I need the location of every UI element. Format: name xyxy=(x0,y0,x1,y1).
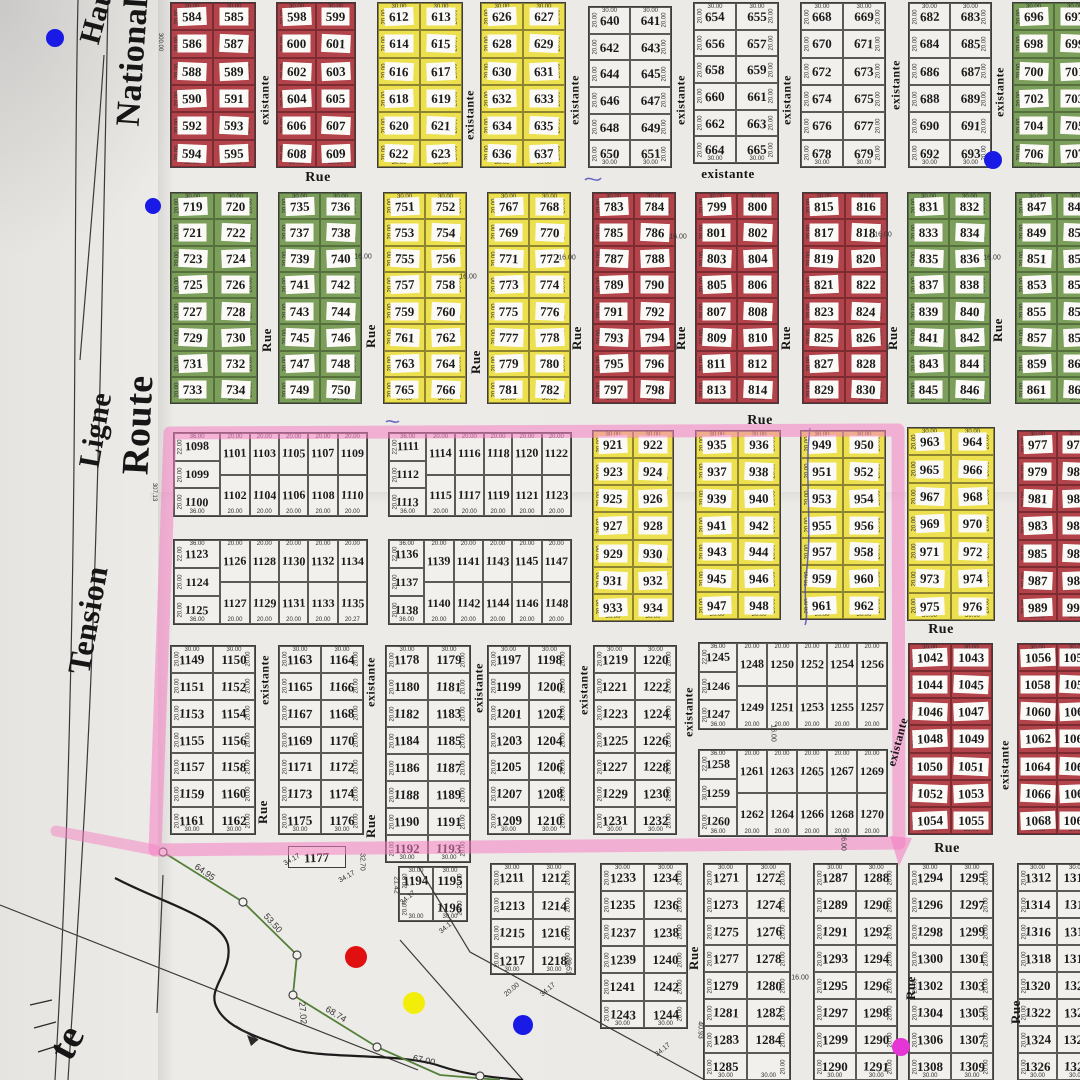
parcel-number: 1163 xyxy=(285,652,315,666)
parcel-cell: 83520.00 xyxy=(908,246,949,272)
parcel-number: 861 xyxy=(1025,383,1049,396)
dimension-label: 36.00 xyxy=(190,617,205,623)
parcel-cell: 65720.00 xyxy=(736,30,778,57)
parcel-cell: 131330.0020.00 xyxy=(1057,864,1080,891)
parcel-number: 964 xyxy=(961,435,985,448)
parcel-cell: 129530.0020.00 xyxy=(951,864,993,891)
dimension-label: 20.00 xyxy=(452,146,458,161)
parcel-number: 1127 xyxy=(221,597,248,610)
parcel-number: 769 xyxy=(497,226,521,239)
parcel-number: 1264 xyxy=(768,808,796,822)
dimension-label: 20.00 xyxy=(774,751,789,757)
parcel-cell: 84420.00 xyxy=(949,351,990,377)
parcel-number: 770 xyxy=(537,225,561,239)
parcel-number: 642 xyxy=(598,41,622,54)
parcel-number: 673 xyxy=(852,64,876,78)
dimension-label: 20.00 xyxy=(555,36,561,51)
parcel-number: 1275 xyxy=(710,924,741,938)
parcel-number: 688 xyxy=(917,92,941,106)
parcel-cell: 76320.00 xyxy=(384,351,425,377)
dimension-label: 20.00 xyxy=(247,356,253,371)
parcel-cell: 60320.00 xyxy=(316,58,355,85)
parcel-number: 744 xyxy=(328,304,352,318)
parcel-cell: 67320.00 xyxy=(843,58,885,85)
parcel-cell: 80030.0020.00 xyxy=(737,193,778,219)
street-label: Rue xyxy=(1008,1000,1024,1024)
parcel-cell: 129820.00 xyxy=(909,918,951,945)
parcel-number: 965 xyxy=(918,463,942,476)
parcel-cell: 64220.00 xyxy=(589,34,630,61)
street-label: Rue xyxy=(363,814,379,838)
parcel-number: 1245 xyxy=(704,650,732,664)
marker-dot xyxy=(46,29,64,47)
parcel-number: 983 xyxy=(1025,519,1049,533)
parcel-block: 78330.0020.0078430.0020.0078520.0078620.… xyxy=(592,192,676,404)
parcel-number: 591 xyxy=(222,92,246,105)
parcel-cell: 114220.00 xyxy=(454,582,483,624)
parcel-cell: 126920.00 xyxy=(857,750,887,793)
parcel-cell: 105120.00 xyxy=(951,753,993,780)
parcel-number: 1282 xyxy=(753,1005,784,1019)
parcel-number: 1055 xyxy=(956,814,986,827)
parcel-number: 838 xyxy=(958,278,982,291)
parcel-number: 1222 xyxy=(640,679,671,693)
parcel-cell: 93920.00 xyxy=(696,485,738,512)
parcel-cell: 110320.00 xyxy=(250,433,279,475)
parcel-cell: 81630.0020.00 xyxy=(845,193,887,219)
parcel-cell: 130930.0020.00 xyxy=(951,1053,993,1080)
dimension-label: 16.00 xyxy=(669,234,687,241)
parcel-cell: 132120.00 xyxy=(1057,972,1080,999)
dimension-label: 20.00 xyxy=(175,277,181,292)
parcel-block: 71930.0020.0072030.0020.0072120.0072220.… xyxy=(170,192,258,404)
parcel-cell: 129030.0020.00 xyxy=(814,1053,856,1080)
parcel-cell: 129130.0020.00 xyxy=(856,1053,898,1080)
parcel-number: 1277 xyxy=(710,951,741,965)
parcel-cell: 76920.00 xyxy=(488,219,529,245)
parcel-number: 1151 xyxy=(177,680,206,693)
parcel-cell: 84120.00 xyxy=(908,324,949,350)
parcel-cell: 114020.00 xyxy=(424,582,453,624)
parcel-number: 1141 xyxy=(455,555,482,568)
parcel-block: 129430.0020.00129530.0020.00129620.00129… xyxy=(908,863,994,1080)
parcel-cell: 127020.00 xyxy=(857,793,887,836)
parcel-number: 1164 xyxy=(327,653,356,666)
parcel-cell: 94730.0020.00 xyxy=(696,592,738,619)
parcel-number: 747 xyxy=(287,357,311,371)
parcel-number: 1162 xyxy=(219,814,248,827)
parcel-cell: 64130.0020.00 xyxy=(630,7,671,34)
parcel-number: 720 xyxy=(224,200,248,213)
parcel-number: 829 xyxy=(812,383,836,396)
parcel-number: 976 xyxy=(961,600,985,613)
parcel-cell: 60720.00 xyxy=(316,112,355,139)
parcel-number: 832 xyxy=(958,200,982,213)
parcel-number: 1119 xyxy=(484,488,511,502)
dimension-label: 20.00 xyxy=(345,434,360,440)
parcel-number: 815 xyxy=(812,199,836,213)
parcel-number: 584 xyxy=(180,10,204,24)
parcel-number: 842 xyxy=(957,330,981,344)
parcel-number: 839 xyxy=(917,305,941,318)
parcel-cell: 113836.0020.00 xyxy=(389,596,424,624)
dimension-label: 20.00 xyxy=(665,199,671,214)
parcel-cell: 129020.00 xyxy=(856,1026,898,1053)
parcel-cell: 131620.00 xyxy=(1018,918,1057,945)
parcel-number: 764 xyxy=(434,357,458,370)
parcel-number: 1295 xyxy=(957,871,987,884)
street-label: existante xyxy=(472,663,487,713)
parcel-number: 1148 xyxy=(542,596,570,610)
parcel-number: 1057 xyxy=(1062,651,1080,664)
parcel-cell: 109836.0022.00 xyxy=(174,433,220,461)
parcel-number: 1063 xyxy=(1062,732,1080,745)
parcel-cell: 97120.00 xyxy=(908,538,951,565)
parcel-number: 982 xyxy=(1064,492,1080,506)
parcel-number: 836 xyxy=(957,252,981,266)
dimension-label: 20.00 xyxy=(912,544,918,559)
parcel-cell: 123330.0020.00 xyxy=(601,864,644,891)
parcel-number: 783 xyxy=(601,199,625,213)
parcel-cell: 95120.00 xyxy=(801,458,843,485)
street-label: Rue xyxy=(673,326,689,350)
street-label: existante xyxy=(993,67,1008,117)
parcel-number: 930 xyxy=(641,546,665,560)
parcel-cell: 73920.00 xyxy=(279,246,320,272)
parcel-number: 1165 xyxy=(285,680,314,693)
parcel-cell: 73530.0020.00 xyxy=(279,193,320,219)
parcel-number: 944 xyxy=(747,545,771,559)
parcel-number: 1238 xyxy=(650,925,681,939)
dimension-label: 16.00 xyxy=(791,975,809,982)
parcel-cell: 79020.00 xyxy=(634,272,675,298)
parcel-number: 657 xyxy=(745,36,769,50)
street-label: Rue xyxy=(259,328,275,352)
parcel-cell: 118120.00 xyxy=(428,673,470,700)
parcel-number: 1290 xyxy=(861,897,892,911)
parcel-block: 125836.0022.00125930.00126036.0020.00126… xyxy=(698,749,888,837)
parcel-number: 669 xyxy=(852,10,876,23)
parcel-cell: 81220.00 xyxy=(737,351,778,377)
parcel-cell: 115520.00 xyxy=(171,727,213,754)
parcel-number: 1244 xyxy=(650,1007,681,1021)
parcel-cell: 113320.00 xyxy=(308,582,337,624)
parcel-number: 620 xyxy=(387,119,411,132)
dimension-label: 20.00 xyxy=(804,722,819,728)
parcel-cell: 96820.00 xyxy=(951,483,994,510)
dimension-label: 20.00 xyxy=(555,64,561,79)
parcel-cell: 94830.0020.00 xyxy=(738,592,780,619)
dimension-label: 20.00 xyxy=(912,571,918,586)
parcel-cell: 93330.0020.00 xyxy=(593,594,633,621)
parcel-cell: 111420.00 xyxy=(426,433,455,475)
parcel-number: 637 xyxy=(532,146,556,160)
parcel-number: 1316 xyxy=(1022,924,1053,938)
parcel-cell: 60120.00 xyxy=(316,30,355,57)
parcel-number: 1157 xyxy=(177,760,206,773)
parcel-cell: 120820.00 xyxy=(529,780,570,807)
parcel-cell: 59530.0020.00 xyxy=(213,140,255,167)
dimension-label: 39.51 xyxy=(565,957,572,975)
parcel-number: 1288 xyxy=(861,871,891,884)
parcel-cell: 117320.00 xyxy=(279,780,321,807)
parcel-number: 753 xyxy=(393,226,417,239)
parcel-block: 112336.0022.00112420.00112536.0020.00112… xyxy=(173,539,368,625)
parcel-cell: 65820.00 xyxy=(694,56,736,83)
parcel-block: 64030.0020.0064130.0020.0064220.0064320.… xyxy=(588,6,672,168)
parcel-number: 1111 xyxy=(394,440,420,454)
parcel-number: 834 xyxy=(957,225,981,239)
parcel-number: 810 xyxy=(745,330,769,344)
dimension-label: 16.00 xyxy=(558,255,576,262)
dimension-label: 20.00 xyxy=(560,356,566,371)
parcel-number: 670 xyxy=(810,37,834,50)
road-name-label: te xyxy=(38,1017,95,1067)
parcel-number: 1118 xyxy=(484,447,511,461)
parcel-cell: 59830.0020.00 xyxy=(277,3,316,30)
parcel-cell: 58920.00 xyxy=(213,58,255,85)
parcel-cell: 69120.00 xyxy=(950,112,991,139)
parcel-number: 1187 xyxy=(434,760,464,774)
parcel-number: 665 xyxy=(745,143,769,157)
parcel-number: 1202 xyxy=(534,706,565,720)
parcel-number: 1273 xyxy=(711,898,741,911)
parcel-number: 601 xyxy=(323,37,347,51)
parcel-number: 1212 xyxy=(539,871,569,884)
parcel-number: 1221 xyxy=(600,680,630,693)
parcel-number: 1306 xyxy=(915,1032,946,1046)
parcel-number: 820 xyxy=(854,252,878,266)
dimension-label: 20.00 xyxy=(227,434,242,440)
dimension-label: 34.17 xyxy=(539,982,557,999)
parcel-number: 951 xyxy=(810,465,834,478)
parcel-cell: 126036.0020.00 xyxy=(699,807,737,836)
parcel-number: 1261 xyxy=(738,765,766,779)
parcel-number: 682 xyxy=(917,10,941,24)
parcel-number: 1324 xyxy=(1022,1032,1053,1046)
parcel-number: 925 xyxy=(601,492,625,506)
parcel-cell: 115420.00 xyxy=(213,700,255,727)
parcel-cell: 120620.00 xyxy=(529,753,570,780)
parcel-number: 618 xyxy=(387,92,411,106)
parcel-number: 1045 xyxy=(956,678,987,692)
parcel-cell: 82220.00 xyxy=(845,272,887,298)
dimension-label: 20.00 xyxy=(490,509,505,515)
dimension-label: 32.70 xyxy=(359,853,366,871)
parcel-number: 1209 xyxy=(493,813,524,827)
parcel-cell: 111336.0020.00 xyxy=(389,488,426,516)
parcel-number: 594 xyxy=(180,146,204,160)
parcel-number: 765 xyxy=(393,383,417,396)
parcel-block: 127130.0020.00127230.0020.00127320.00127… xyxy=(703,863,791,1080)
parcel-cell: 61620.00 xyxy=(378,58,420,85)
parcel-cell: 74420.00 xyxy=(320,298,361,324)
parcel-number: 1246 xyxy=(704,680,732,693)
parcel-cell: 113420.00 xyxy=(338,540,367,582)
parcel-cell: 82020.00 xyxy=(845,246,887,272)
parcel-cell: 115220.00 xyxy=(213,673,255,700)
parcel-number: 1263 xyxy=(768,765,796,778)
parcel-number: 851 xyxy=(1024,252,1048,266)
parcel-number: 607 xyxy=(323,119,347,133)
parcel-cell: 118520.00 xyxy=(428,727,470,754)
parcel-number: 1181 xyxy=(434,679,464,693)
dimension-label: 20.00 xyxy=(981,91,987,106)
parcel-cell: 77420.00 xyxy=(529,272,570,298)
dimension-label: 20.00 xyxy=(875,491,881,506)
parcel-number: 1294 xyxy=(915,870,946,884)
dimension-label: 20.00 xyxy=(980,199,986,214)
parcel-number: 1145 xyxy=(513,554,541,568)
parcel-number: 706 xyxy=(1021,146,1045,160)
parcel-cell: 68720.00 xyxy=(950,58,991,85)
parcel-cell: 80720.00 xyxy=(696,298,737,324)
parcel-number: 1305 xyxy=(957,1005,988,1019)
dimension-label: 20.00 xyxy=(549,617,564,623)
parcel-number: 675 xyxy=(852,92,876,105)
parcel-cell: 64720.00 xyxy=(630,87,671,114)
parcel-cell: 99030.0020.00 xyxy=(1057,594,1080,621)
parcel-number: 1124 xyxy=(183,576,210,589)
parcel-number: 634 xyxy=(490,119,514,132)
parcel-cell: 85120.00 xyxy=(1016,246,1057,272)
parcel-number: 600 xyxy=(285,37,309,50)
parcel-block: 123330.0020.00123430.0020.00123520.00123… xyxy=(600,863,688,1029)
parcel-cell: 126620.00 xyxy=(797,793,827,836)
parcel-number: 1169 xyxy=(285,733,315,747)
parcel-block: 61230.0020.0061330.0020.0061420.0061520.… xyxy=(377,2,463,168)
parcel-number: 608 xyxy=(284,146,308,160)
parcel-cell: 66120.00 xyxy=(736,83,778,110)
parcel-number: 585 xyxy=(222,10,246,23)
parcel-cell: 77920.00 xyxy=(488,351,529,377)
parcel-number: 1150 xyxy=(219,653,248,666)
parcel-cell: 110036.0020.00 xyxy=(174,488,220,516)
parcel-cell: 125220.00 xyxy=(797,643,827,686)
parcel-cell: 97630.0020.00 xyxy=(951,593,994,620)
parcel-cell: 63730.0020.00 xyxy=(523,140,565,167)
parcel-number: 942 xyxy=(747,519,771,532)
parcel-cell: 77820.00 xyxy=(529,324,570,350)
parcel-number: 934 xyxy=(641,601,665,614)
marker-dot xyxy=(145,198,161,214)
parcel-number: 989 xyxy=(1025,600,1049,614)
parcel-number: 807 xyxy=(705,305,729,318)
parcel-number: 1312 xyxy=(1022,870,1053,884)
parcel-number: 773 xyxy=(496,278,520,292)
parcel-cell: 118220.00 xyxy=(386,700,428,727)
parcel-cell: 112720.00 xyxy=(220,582,249,624)
parcel-cell: 97020.00 xyxy=(951,510,994,537)
parcel-cell: 93020.00 xyxy=(633,540,673,567)
parcel-number: 750 xyxy=(328,383,352,397)
parcel-number: 1200 xyxy=(534,679,565,693)
parcel-cell: 113720.00 xyxy=(389,568,424,596)
parcel-cell: 80220.00 xyxy=(737,219,778,245)
dimension-label: 20.00 xyxy=(351,356,357,371)
parcel-number: 1233 xyxy=(607,871,638,885)
parcel-cell: 63320.00 xyxy=(523,85,565,112)
parcel-number: 754 xyxy=(433,225,457,239)
parcel-number: 932 xyxy=(641,573,665,587)
parcel-cell: 110220.00 xyxy=(220,475,249,517)
dimension-label: 20.00 xyxy=(555,9,561,24)
parcel-cell: 76220.00 xyxy=(425,324,466,350)
parcel-block: 59830.0020.0059930.0020.0060020.0060120.… xyxy=(276,2,356,168)
parcel-cell: 78820.00 xyxy=(634,246,675,272)
parcel-cell: 121030.0020.00 xyxy=(529,807,570,834)
parcel-number: 1320 xyxy=(1023,979,1053,992)
dimension-label: 20.00 xyxy=(549,541,564,547)
parcel-number: 802 xyxy=(745,225,769,239)
parcel-number: 589 xyxy=(222,64,246,78)
parcel-cell: 132020.00 xyxy=(1018,972,1057,999)
parcel-number: 621 xyxy=(429,119,453,133)
parcel-number: 1192 xyxy=(392,842,421,855)
parcel-number: 636 xyxy=(490,146,514,160)
parcel-block: 84730.0020.0084830.0020.0084920.0085020.… xyxy=(1015,192,1080,404)
parcel-number: 1178 xyxy=(392,652,422,666)
parcel-cell: 85820.00 xyxy=(1057,324,1080,350)
parcel-cell: 119630.0020.00 xyxy=(433,894,467,921)
road-name-label: Ligne xyxy=(73,390,120,471)
street-label: Rue xyxy=(885,326,901,350)
parcel-cell: 113920.00 xyxy=(424,540,453,582)
dimension-label: 20.00 xyxy=(245,146,251,161)
parcel-number: 843 xyxy=(916,357,940,371)
parcel-number: 613 xyxy=(429,10,453,23)
parcel-cell: 94930.0020.00 xyxy=(801,431,843,458)
parcel-cell: 75130.0020.00 xyxy=(384,193,425,219)
parcel-cell: 104820.00 xyxy=(909,725,951,752)
parcel-cell: 128220.00 xyxy=(747,999,790,1026)
parcel-cell: 67220.00 xyxy=(801,58,843,85)
dimension-label: 20.00 xyxy=(519,509,534,515)
parcel-cell: 110920.00 xyxy=(338,433,367,475)
parcel-cell: 92520.00 xyxy=(593,485,633,512)
parcel-cell: 84220.00 xyxy=(949,324,990,350)
dimension-label: 20.00 xyxy=(770,571,776,586)
parcel-block: 113636.0022.00113720.00113836.0020.00113… xyxy=(388,539,572,625)
street-label: existante xyxy=(258,75,273,125)
dimension-label: 16.00 xyxy=(983,255,1001,262)
parcel-cell: 115120.00 xyxy=(171,673,213,700)
parcel-number: 990 xyxy=(1065,601,1080,614)
parcel-number: 816 xyxy=(854,200,878,213)
parcel-cell: 66930.0020.00 xyxy=(843,3,885,30)
parcel-number: 1239 xyxy=(607,952,638,966)
parcel-cell: 72720.00 xyxy=(171,298,214,324)
parcel-cell: 60020.00 xyxy=(277,30,316,57)
dimension-label: 20.00 xyxy=(519,541,534,547)
parcel-number: 1253 xyxy=(798,701,826,715)
parcel-cell: 115620.00 xyxy=(213,727,255,754)
parcel-cell: 65430.0020.00 xyxy=(694,3,736,30)
parcel-cell: 123920.00 xyxy=(601,946,644,973)
parcel-cell: 64620.00 xyxy=(589,87,630,114)
parcel-number: 588 xyxy=(180,64,204,78)
parcel-number: 1064 xyxy=(1023,760,1053,773)
parcel-number: 668 xyxy=(810,10,834,24)
dimension-label: 20.00 xyxy=(175,199,181,214)
dimension-label: 20.00 xyxy=(175,225,181,240)
dimension-label: 20.00 xyxy=(875,598,881,613)
parcel-number: 1309 xyxy=(957,1059,988,1073)
parcel-number: 749 xyxy=(288,383,312,396)
parcel-cell: 122720.00 xyxy=(594,753,635,780)
parcel-number: 933 xyxy=(601,600,625,614)
parcel-cell: 112920.00 xyxy=(250,582,279,624)
